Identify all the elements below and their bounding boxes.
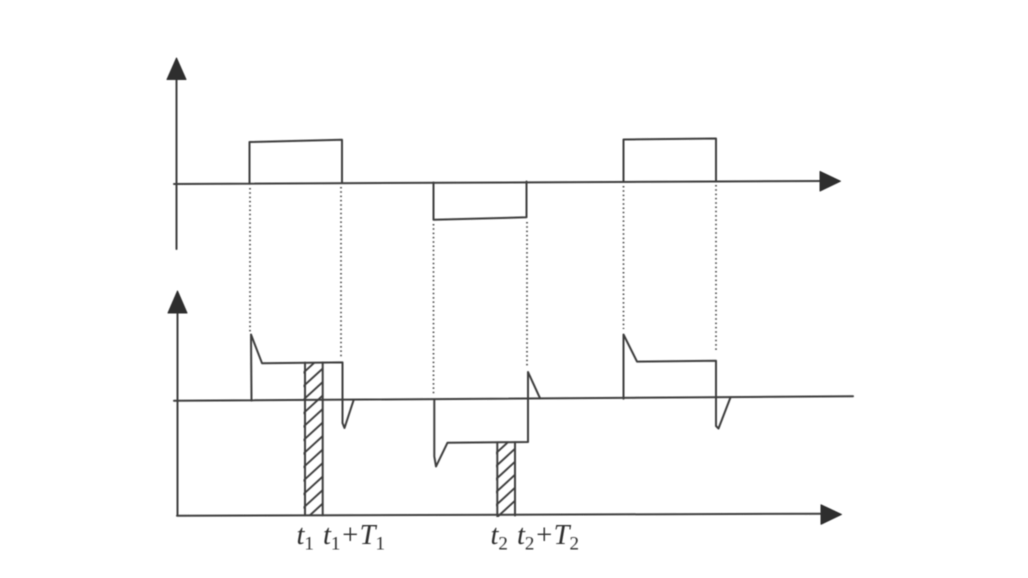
svg-text:t2: t2: [491, 520, 508, 555]
svg-text:t1: t1: [297, 520, 314, 555]
svg-text:t2+T2: t2+T2: [517, 520, 579, 555]
svg-text:t1+T1: t1+T1: [323, 520, 385, 555]
